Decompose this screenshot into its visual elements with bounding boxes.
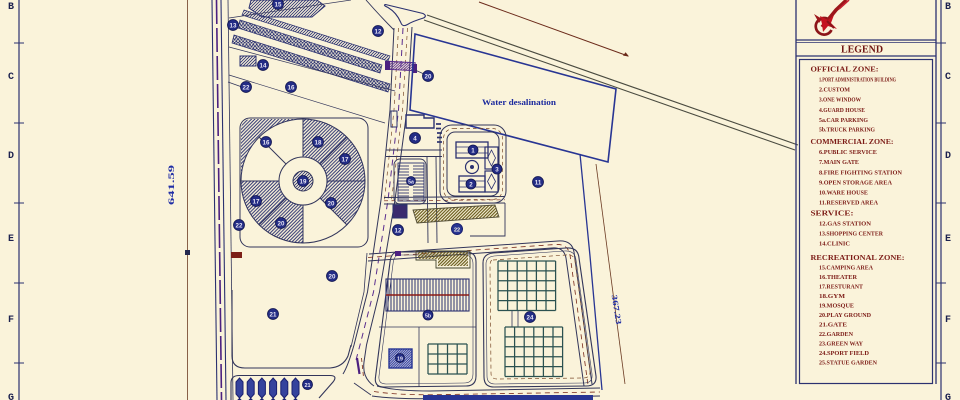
svg-text:21.GATE: 21.GATE (819, 322, 848, 329)
svg-text:21: 21 (304, 383, 310, 389)
svg-text:3.ONE WINDOW: 3.ONE WINDOW (819, 97, 861, 104)
svg-text:20: 20 (329, 274, 336, 281)
svg-text:C: C (8, 72, 14, 83)
svg-text:4: 4 (413, 136, 417, 143)
svg-text:17: 17 (342, 157, 349, 164)
svg-text:25.STATUE GARDEN: 25.STATUE GARDEN (819, 360, 877, 367)
svg-text:16: 16 (263, 140, 270, 147)
svg-text:Water desalination: Water desalination (482, 97, 556, 107)
svg-text:17.RESTURANT: 17.RESTURANT (819, 284, 863, 291)
svg-text:8.FIRE FIGHTING STATION: 8.FIRE FIGHTING STATION (819, 169, 902, 176)
svg-text:10.WARE HOUSE: 10.WARE HOUSE (819, 189, 868, 196)
svg-text:22.GARDEN: 22.GARDEN (819, 331, 853, 338)
svg-text:COMMERCIAL ZONE:: COMMERCIAL ZONE: (811, 137, 894, 146)
svg-text:5b.TRUCK PARKING: 5b.TRUCK PARKING (819, 127, 876, 134)
svg-text:RECREATIONAL ZONE:: RECREATIONAL ZONE: (811, 253, 905, 262)
svg-text:9.OPEN STORAGE AREA: 9.OPEN STORAGE AREA (819, 180, 892, 187)
svg-text:G: G (8, 393, 14, 400)
svg-text:13: 13 (230, 23, 237, 30)
svg-text:22: 22 (236, 223, 243, 230)
svg-text:12.GAS STATION: 12.GAS STATION (819, 221, 871, 228)
svg-text:18.GYM: 18.GYM (819, 293, 846, 300)
svg-text:20: 20 (278, 221, 285, 228)
svg-text:E: E (945, 234, 951, 245)
svg-text:17: 17 (253, 199, 260, 206)
svg-text:15.CAMPING AREA: 15.CAMPING AREA (819, 265, 873, 272)
svg-text:SERVICE:: SERVICE: (811, 209, 854, 218)
svg-text:20: 20 (425, 74, 432, 81)
svg-text:19: 19 (300, 179, 307, 186)
svg-text:12: 12 (375, 29, 382, 36)
svg-text:5a.CAR PARKING: 5a.CAR PARKING (819, 117, 869, 124)
svg-text:19: 19 (397, 357, 403, 363)
svg-text:B: B (945, 2, 951, 13)
svg-text:B: B (8, 2, 14, 13)
svg-text:16: 16 (288, 85, 295, 92)
svg-text:6.PUBLIC SERVICE: 6.PUBLIC SERVICE (819, 149, 878, 156)
svg-text:21: 21 (270, 312, 277, 319)
svg-text:E: E (8, 234, 14, 245)
svg-text:F: F (945, 315, 951, 326)
svg-text:D: D (8, 151, 14, 162)
svg-text:OFFICIAL ZONE:: OFFICIAL ZONE: (811, 65, 879, 74)
svg-text:24.SPORT FIELD: 24.SPORT FIELD (819, 350, 869, 357)
svg-text:22: 22 (243, 85, 250, 92)
svg-text:24: 24 (527, 315, 534, 322)
svg-text:2.CUSTOM: 2.CUSTOM (819, 87, 851, 94)
svg-text:3: 3 (495, 167, 499, 174)
svg-text:7.MAIN GATE: 7.MAIN GATE (819, 159, 859, 166)
svg-text:C: C (945, 72, 951, 83)
svg-text:19.MOSQUE: 19.MOSQUE (819, 303, 854, 310)
svg-text:18: 18 (315, 140, 322, 147)
svg-text:11.RESERVED AREA: 11.RESERVED AREA (819, 199, 878, 206)
svg-text:20.PLAY GROUND: 20.PLAY GROUND (819, 312, 871, 319)
svg-text:15: 15 (275, 2, 282, 9)
svg-text:16.THEATER: 16.THEATER (819, 274, 857, 281)
svg-text:G: G (945, 393, 951, 400)
svg-text:1.PORT ADMINISTRATION BUILDI: 1.PORT ADMINISTRATION BUILDING (819, 77, 897, 84)
svg-text:D: D (945, 151, 951, 162)
svg-text:F: F (8, 315, 14, 326)
svg-text:2: 2 (469, 182, 473, 189)
svg-text:13.SHOPPING CENTER: 13.SHOPPING CENTER (819, 231, 883, 238)
svg-text:12: 12 (395, 228, 402, 235)
svg-text:22: 22 (454, 227, 460, 233)
svg-text:LEGEND: LEGEND (841, 45, 883, 56)
svg-text:5b: 5b (425, 313, 431, 319)
svg-text:23.GREEN WAY: 23.GREEN WAY (819, 341, 863, 348)
svg-text:11: 11 (535, 180, 542, 187)
svg-text:14.CLINIC: 14.CLINIC (819, 241, 850, 248)
svg-text:641.59: 641.59 (166, 165, 176, 205)
svg-text:5a: 5a (408, 179, 414, 185)
svg-text:20: 20 (328, 201, 335, 208)
svg-text:4.GUARD HOUSE: 4.GUARD HOUSE (819, 107, 865, 114)
svg-text:1: 1 (471, 148, 475, 155)
svg-text:14: 14 (260, 63, 267, 70)
